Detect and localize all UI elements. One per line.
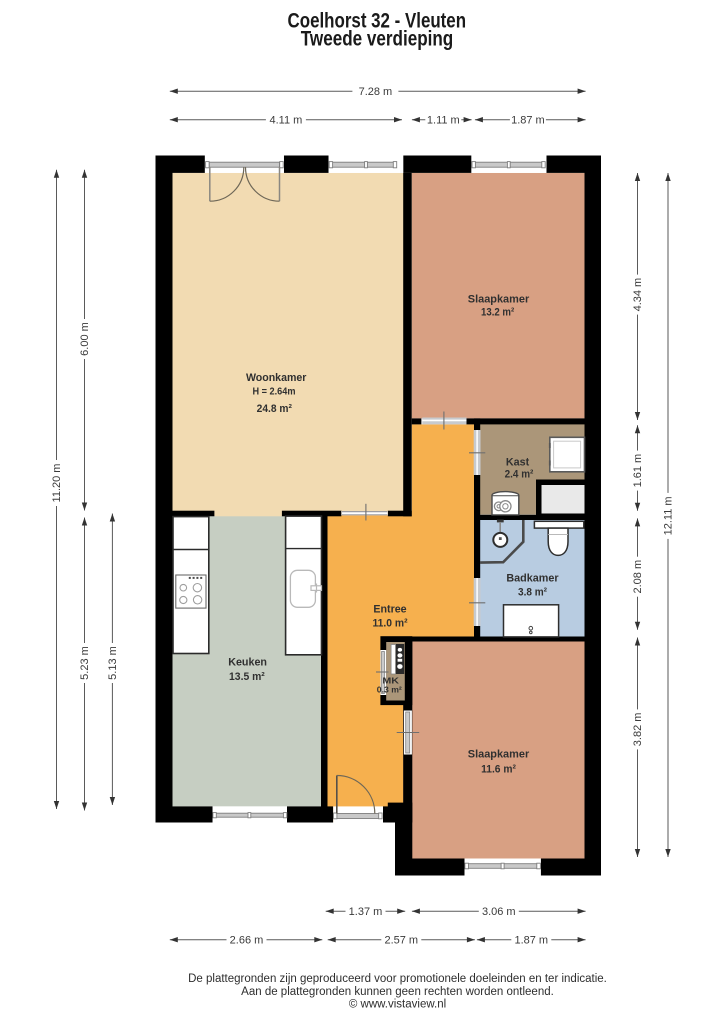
svg-text:Kast: Kast	[506, 457, 530, 469]
svg-text:Woonkamer: Woonkamer	[246, 372, 307, 384]
svg-text:De plattegronden zijn geproduc: De plattegronden zijn geproduceerd voor …	[188, 973, 607, 985]
svg-text:Aan de plattegronden kunnen ge: Aan de plattegronden kunnen geen rechten…	[241, 986, 554, 998]
svg-text:3.82 m: 3.82 m	[632, 713, 644, 747]
svg-text:3.06 m: 3.06 m	[482, 906, 516, 918]
svg-text:2.4 m²: 2.4 m²	[505, 468, 534, 480]
svg-text:4.34 m: 4.34 m	[632, 278, 644, 312]
svg-text:6.00 m: 6.00 m	[79, 322, 91, 356]
svg-text:5.13 m: 5.13 m	[107, 646, 119, 680]
svg-text:Badkamer: Badkamer	[506, 573, 559, 585]
svg-text:1.87 m: 1.87 m	[511, 115, 545, 127]
svg-text:1.87 m: 1.87 m	[514, 934, 548, 946]
svg-text:2.08 m: 2.08 m	[632, 560, 644, 594]
svg-text:7.28 m: 7.28 m	[359, 86, 393, 98]
svg-text:2.66 m: 2.66 m	[230, 934, 264, 946]
svg-text:0.3 m²: 0.3 m²	[377, 685, 402, 695]
svg-text:1.61 m: 1.61 m	[632, 454, 644, 488]
svg-text:11.6 m²: 11.6 m²	[481, 764, 516, 776]
svg-text:2.57 m: 2.57 m	[384, 934, 418, 946]
svg-text:Tweede verdieping: Tweede verdieping	[301, 27, 454, 51]
svg-text:4.11 m: 4.11 m	[269, 115, 302, 127]
svg-text:13.2 m²: 13.2 m²	[481, 307, 514, 319]
svg-text:13.5 m²: 13.5 m²	[229, 671, 265, 683]
svg-text:5.23 m: 5.23 m	[79, 646, 91, 680]
svg-text:1.37 m: 1.37 m	[349, 906, 383, 918]
svg-text:© www.vistaview.nl: © www.vistaview.nl	[349, 999, 446, 1011]
svg-text:12.11 m: 12.11 m	[663, 496, 675, 535]
svg-text:1.11 m: 1.11 m	[427, 115, 460, 127]
svg-text:11.20 m: 11.20 m	[51, 464, 63, 503]
svg-text:H = 2.64m: H = 2.64m	[253, 386, 296, 397]
svg-text:3.8 m²: 3.8 m²	[518, 587, 547, 599]
svg-text:Keuken: Keuken	[228, 657, 267, 669]
svg-text:Entree: Entree	[373, 603, 406, 615]
svg-text:11.0 m²: 11.0 m²	[372, 617, 407, 629]
svg-text:Slaapkamer: Slaapkamer	[468, 749, 530, 761]
svg-text:Slaapkamer: Slaapkamer	[468, 293, 530, 305]
svg-text:24.8 m²: 24.8 m²	[257, 403, 293, 415]
